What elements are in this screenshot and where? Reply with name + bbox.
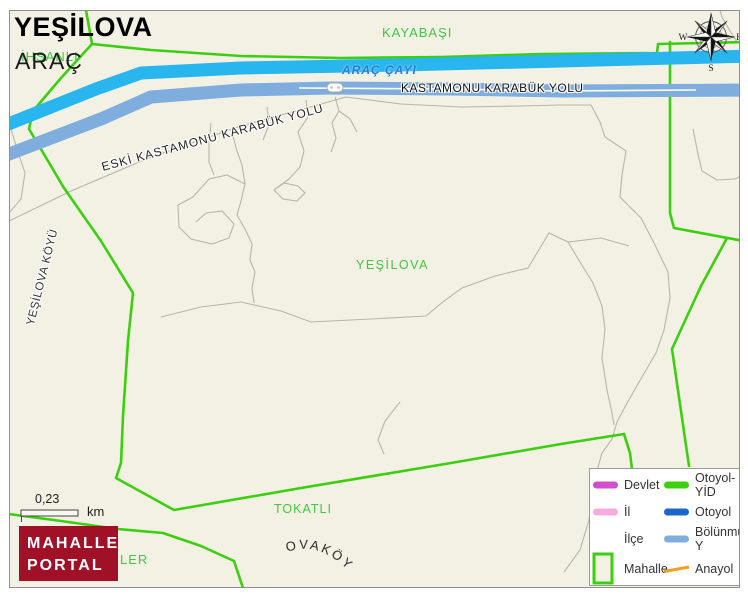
legend-item-mahalle: Mahalle (592, 552, 663, 585)
scale-value: 0,23 (35, 493, 59, 507)
boundary-line (670, 42, 739, 242)
divided-road-line (10, 88, 739, 159)
neighbor-label-tokatli: TOKATLI (274, 503, 332, 517)
boundary-line (672, 238, 727, 466)
compass-e-label: E (736, 33, 739, 43)
path-line (378, 402, 400, 454)
legend-item-bolunmus-yol: Bölünmüş Y (663, 525, 739, 552)
path-line (693, 129, 739, 180)
legend-item-otoyol-yid: Otoyol-YİD (663, 472, 739, 498)
path-line (274, 183, 305, 201)
legend-item-ilce: İlçe (592, 525, 663, 552)
partial-place-label-ler: LER (120, 553, 148, 567)
line-swatch-icon (592, 480, 620, 490)
district-subtitle: ARAÇ (15, 49, 83, 74)
page-title: YEŞİLOVA (14, 13, 153, 43)
scale-unit: km (87, 505, 104, 519)
main-road-label: KASTAMONU KARABÜK YOLU (401, 82, 584, 95)
line-swatch-icon (663, 507, 691, 517)
legend-item-il: İl (592, 498, 663, 525)
path-line (331, 97, 339, 152)
path-line (339, 111, 357, 132)
path-line (237, 184, 255, 303)
map-frame: OVAKÖYÜ (9, 10, 740, 588)
map-page: { "title": { "name": "YEŞİLOVA", "distri… (0, 0, 748, 598)
line-swatch-icon (663, 563, 691, 575)
compass-n-label: N (708, 11, 715, 14)
area-center-label: YEŞİLOVA (356, 259, 429, 273)
bridge-icon (327, 83, 343, 92)
blank-swatch (592, 534, 620, 544)
boundary-line (624, 434, 632, 469)
logo-line2: PORTAL (27, 555, 118, 577)
area-swatch-icon (592, 552, 620, 585)
legend-item-devlet: Devlet (592, 472, 663, 498)
path-line (178, 205, 234, 244)
line-swatch-icon (592, 507, 620, 517)
road-east-line (346, 97, 591, 107)
compass-w-label: W (679, 33, 688, 43)
river-label: ARAÇ ÇAYI (342, 64, 417, 77)
path-line (178, 175, 245, 205)
path-line (10, 129, 25, 213)
path-line (568, 242, 614, 425)
legend-item-otoyol: Otoyol (663, 498, 739, 525)
compass-s-label: S (708, 64, 713, 74)
line-swatch-icon (663, 534, 691, 544)
logo-line1: MAHALLE (27, 533, 118, 555)
neighbor-label-kayabasi: KAYABAŞI (382, 26, 452, 40)
line-swatch-icon (663, 480, 691, 490)
mahalle-portal-logo: MAHALLE PORTAL (19, 526, 118, 581)
legend-item-anayol: Anayol (663, 552, 739, 585)
path-line (161, 233, 629, 322)
legend-panel: Devlet Otoyol-YİD İl Otoyol İlçe Bölünmü… (589, 468, 740, 586)
